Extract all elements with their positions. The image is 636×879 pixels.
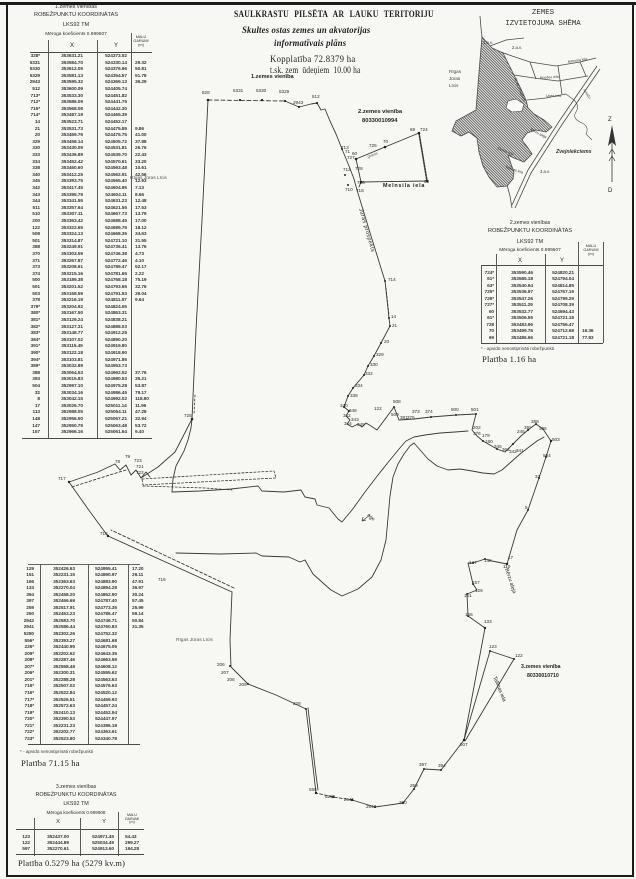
- svg-text:grāvis: grāvis: [367, 151, 379, 159]
- svg-text:Upes iela: Upes iela: [546, 94, 561, 98]
- svg-text:2.a.v.: 2.a.v.: [512, 45, 522, 50]
- svg-text:Ainažu: Ainažu: [582, 88, 592, 99]
- svg-text:D: D: [608, 188, 613, 194]
- svg-text:3.a.v.: 3.a.v.: [540, 169, 550, 174]
- svg-text:Z: Z: [608, 117, 612, 123]
- svg-text:Melnsila iela: Melnsila iela: [568, 57, 588, 64]
- svg-text:Briedes iela: Briedes iela: [540, 75, 559, 80]
- svg-text:1.a.v.: 1.a.v.: [483, 40, 493, 45]
